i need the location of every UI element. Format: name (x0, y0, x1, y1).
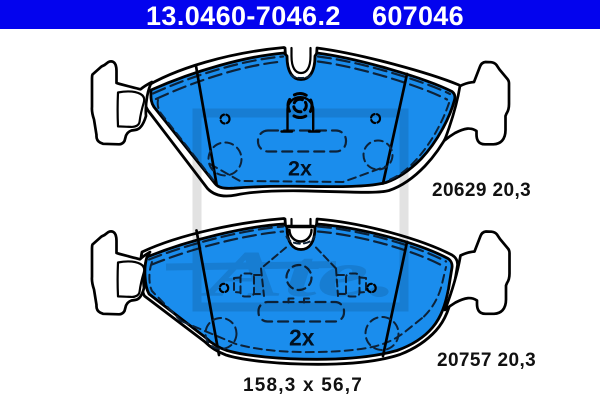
svg-text:2x: 2x (288, 157, 312, 181)
svg-text:13.0460-7046.2: 13.0460-7046.2 (146, 1, 341, 31)
svg-text:Ate.: Ate. (199, 238, 398, 311)
svg-text:607046: 607046 (372, 1, 464, 31)
svg-text:20629 20,3: 20629 20,3 (432, 180, 531, 201)
svg-text:158,3 x 56,7: 158,3 x 56,7 (243, 375, 363, 396)
svg-text:2x: 2x (289, 325, 315, 351)
svg-text:20757 20,3: 20757 20,3 (437, 350, 536, 371)
